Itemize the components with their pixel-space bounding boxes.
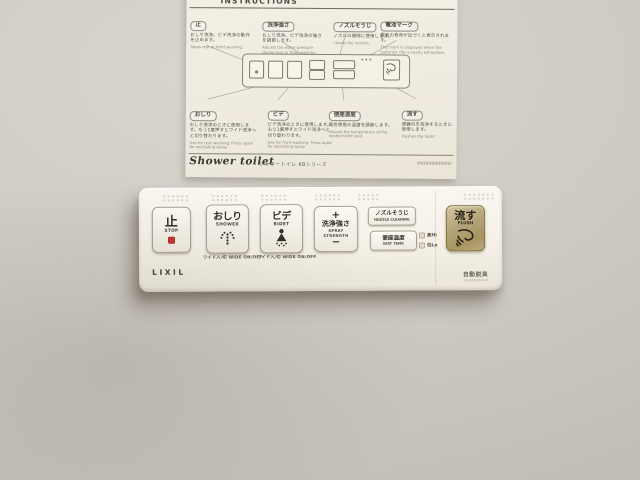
- lixil-logo: LIXIL: [152, 268, 185, 277]
- callout-bidet-en: Use for front washing. Press again for o…: [268, 140, 334, 150]
- hi-led: [419, 232, 425, 238]
- seat-temp-en: SEAT TEMP.: [383, 242, 405, 246]
- diagram-bidet-button: [287, 61, 302, 79]
- flush-swirl-icon: [454, 228, 476, 246]
- flush-kanji: 流す: [454, 210, 476, 221]
- stop-button[interactable]: 止 STOP: [152, 207, 191, 253]
- spray-minus[interactable]: −: [332, 238, 340, 247]
- flush-button[interactable]: 流す FLUSH: [446, 205, 485, 251]
- flush-swirl-icon: [385, 62, 398, 75]
- callout-seat-temp-en: Adjusts the temperature of the heated to…: [329, 130, 393, 140]
- callout-spray-jp: おしり洗浄、ビデ洗浄の強さを調節します。: [262, 33, 326, 44]
- diagram-spray-plus-button: [309, 60, 325, 70]
- callout-stop: 止 おしり洗浄、ビデ洗浄の動作を止めます。 Stops rear or fron…: [190, 11, 254, 50]
- remote-diagram: [242, 53, 410, 88]
- stop-red-indicator: [168, 237, 175, 244]
- diagram-flush-button: [383, 59, 400, 80]
- shower-wide-jp: ワイド入/切: [203, 254, 227, 259]
- bidet-en: BIDET: [274, 222, 290, 227]
- shower-wide-label: ワイド入/切 WIDE ON/OFF: [203, 254, 262, 260]
- callout-flush: 流す 便器内を洗浄するときに使用します。 Flushes the toilet.: [402, 101, 454, 140]
- stop-en: STOP: [164, 229, 178, 234]
- lo-led: [419, 242, 425, 248]
- sheet-part-code: [417, 162, 451, 165]
- callout-stop-label: 止: [190, 21, 206, 31]
- diagram-shower-button: [268, 61, 283, 79]
- callout-flush-en: Flushes the toilet.: [402, 135, 454, 140]
- callout-battery-jp: 電池の寿命が近づくと表示されます。: [380, 33, 452, 45]
- auto-deodorizer-text: 自動脱臭: [463, 269, 488, 278]
- diagram-nozzle-button: [333, 60, 355, 69]
- callout-nozzle-label: ノズルそうじ: [333, 22, 376, 32]
- spray-strength-button[interactable]: + 洗浄強さ SPRAY STRENGTH −: [314, 206, 358, 252]
- callout-stop-en: Stops rear or front washing.: [190, 45, 254, 50]
- braille-shower: [212, 194, 238, 202]
- spray-kanji: 洗浄強さ: [322, 220, 350, 228]
- bidet-wide-jp: ワイド入/切: [257, 254, 281, 259]
- shower-kanji: おしり: [213, 211, 242, 222]
- braille-stop: [163, 195, 189, 203]
- bidet-wide-label: ワイド入/切 WIDE ON/OFF: [257, 254, 316, 260]
- callout-flush-jp: 便器内を洗浄するときに使用します。: [402, 122, 454, 133]
- title-rule: [190, 7, 455, 10]
- series-name: シャワートイレ KBシリーズ: [259, 161, 327, 168]
- braille-flush: [464, 193, 494, 201]
- instruction-sheet: INSTRUCTIONS 止 おしり洗浄、ビデ洗浄の動作を止めます。 Stops…: [185, 0, 457, 179]
- shower-spray-icon: [218, 229, 237, 246]
- seat-temp-button[interactable]: 便座温度 SEAT TEMP.: [370, 230, 417, 250]
- braille-nozzle: [358, 194, 380, 202]
- bathroom-wall: INSTRUCTIONS 止 おしり洗浄、ビデ洗浄の動作を止めます。 Stops…: [0, 0, 640, 480]
- diagram-seat-temp-button: [333, 70, 355, 79]
- flush-en: FLUSH: [458, 221, 474, 226]
- callout-spray-label: 洗浄強さ: [262, 22, 294, 32]
- callout-bidet-label: ビデ: [268, 111, 289, 121]
- callout-stop-jp: おしり洗浄、ビデ洗浄の動作を止めます。: [190, 33, 254, 44]
- callout-battery-label: 電池マーク: [380, 21, 418, 31]
- callout-shower-jp: おしり洗浄のときに使用します。もう1度押すとワイド洗浄へと切り替わります。: [190, 123, 258, 140]
- spray-plus[interactable]: +: [332, 211, 340, 220]
- callout-battery: 電池マーク 電池の寿命が近づくと表示されます。 This mark is dis…: [380, 11, 452, 55]
- callout-seat-temp: 便座温度 暖房便座の温度を調節します。 Adjusts the temperat…: [329, 101, 393, 139]
- callout-shower-label: おしり: [190, 111, 217, 121]
- callout-bidet-jp: ビデ洗浄のときに使用します。もう1度押すとワイド洗浄へと切り替わります。: [268, 122, 334, 139]
- callout-seat-temp-jp: 暖房便座の温度を調節します。: [329, 123, 393, 129]
- diagram-spray-minus-button: [309, 70, 325, 80]
- callout-shower-en: Use for rear washing. Press again for os…: [190, 141, 258, 151]
- battery-mark-icon: [361, 58, 371, 61]
- control-panel: 止 STOP おしり SHOWER ワイド入/切 WIDE ON/OFF ビデ …: [139, 186, 503, 292]
- callout-seat-temp-label: 便座温度: [329, 111, 361, 121]
- nozzle-cleaning-button[interactable]: ノズルそうじ NOZZLE CLEANING: [368, 207, 416, 226]
- callout-flush-label: 流す: [402, 111, 423, 121]
- callout-shower: おしり おしり洗浄のときに使用します。もう1度押すとワイド洗浄へと切り替わります…: [190, 101, 258, 150]
- shower-button[interactable]: おしり SHOWER: [206, 204, 249, 253]
- braille-bidet: [261, 194, 287, 202]
- auto-deodorizer-label: 自動脱臭: [463, 269, 488, 281]
- auto-deodorizer-subtext: [464, 279, 488, 281]
- stop-kanji: 止: [165, 216, 178, 229]
- callout-bidet: ビデ ビデ洗浄のときに使用します。もう1度押すとワイド洗浄へと切り替わります。 …: [268, 101, 334, 150]
- callout-spray-strength: 洗浄強さ おしり洗浄、ビデ洗浄の強さを調節します。 Adjusts the wa…: [262, 12, 326, 56]
- nozzle-en: NOZZLE CLEANING: [374, 217, 410, 221]
- bidet-button[interactable]: ビデ BIDET: [260, 204, 303, 253]
- sheet-title: INSTRUCTIONS: [221, 0, 298, 6]
- bidet-wide-en: WIDE ON/OFF: [282, 254, 316, 259]
- diagram-stop-button: [249, 60, 264, 78]
- bidet-kanji: ビデ: [272, 211, 291, 222]
- shower-en: SHOWER: [216, 222, 239, 227]
- bidet-figure-icon: [272, 228, 291, 247]
- braille-spray: [315, 194, 341, 202]
